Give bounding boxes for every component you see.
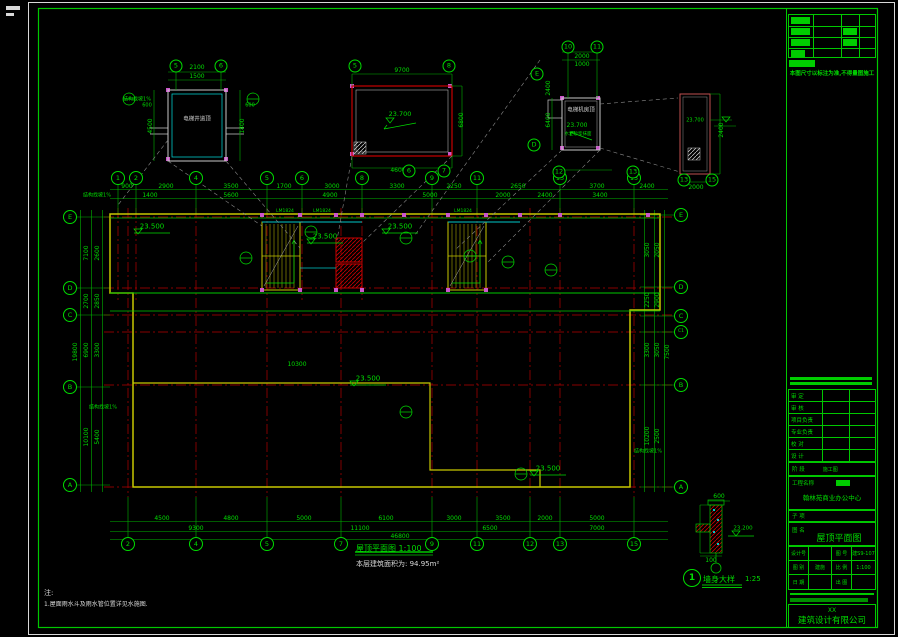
dim-label: 2250 — [645, 292, 651, 307]
revision-table — [788, 14, 876, 58]
slope-note: 结构找坡1% — [89, 406, 117, 411]
room-label: 电梯机房顶 — [567, 108, 595, 114]
axis-bubble-12: 12 — [523, 537, 537, 551]
axis-bubble-2: 2 — [121, 537, 135, 551]
axis-bubble-B: B — [674, 378, 688, 392]
personnel-cell — [823, 426, 850, 437]
axis-bubble-4: 4 — [189, 171, 203, 185]
axis-bubble-8: 8 — [443, 60, 456, 73]
subitem-row: 子 项 — [788, 510, 876, 522]
dim-label: 6900 — [84, 342, 90, 357]
dim-label: 4500 — [154, 516, 169, 522]
axis-bubble-E: E — [674, 208, 688, 222]
finish-note: 水泥砂浆抹面 — [565, 133, 592, 138]
dim-label: 3700 — [589, 184, 604, 190]
cad-sheet: 屋顶平面图 1:100 本层建筑面积为: 94.95m² 注: 1.屋面雨水斗及… — [0, 0, 898, 637]
personnel-cell — [823, 390, 850, 401]
dim-label: 46800 — [390, 534, 409, 540]
axis-bubble-2: 2 — [129, 171, 143, 185]
axis-bubble-12: 12 — [553, 166, 566, 179]
axis-bubble-8: 8 — [355, 171, 369, 185]
dim-label: 5000 — [296, 516, 311, 522]
dim-label: 4800 — [223, 516, 238, 522]
dim-label: 5000 — [589, 516, 604, 522]
personnel-cell — [823, 402, 850, 413]
numbers-grid-cell: 出 图 — [832, 575, 852, 589]
elevation-label: 23.500 — [140, 224, 165, 231]
axis-bubble-6: 6 — [403, 165, 416, 178]
annotation-overlay: 屋顶平面图 1:100 本层建筑面积为: 94.95m² 注: 1.屋面雨水斗及… — [0, 0, 898, 637]
wall-detail-scale: 1:25 — [745, 575, 761, 583]
axis-bubble-D: D — [528, 139, 541, 152]
dim-label: 2650 — [510, 184, 525, 190]
dim-label: 3300 — [389, 184, 404, 190]
axis-bubble-5: 5 — [170, 60, 183, 73]
personnel-row: 项目负责 — [789, 414, 875, 426]
dim-label: 2400 — [546, 80, 552, 95]
dim-label: 2400 — [719, 122, 725, 137]
dim-label: 3000 — [446, 516, 461, 522]
personnel-row: 校 对 — [789, 438, 875, 450]
company-name: 建筑设计有限公司 — [789, 614, 875, 626]
dim-label: 7100 — [84, 245, 90, 260]
axis-bubble-E: E — [531, 68, 544, 81]
numbers-grid-cell: 比 例 — [832, 561, 852, 574]
axis-bubble-11: 11 — [470, 171, 484, 185]
dim-label: 2900 — [158, 184, 173, 190]
stage-row: 阶 段 施工图 — [788, 462, 876, 476]
dim-label: 9300 — [188, 526, 203, 532]
axis-bubble-C: C — [63, 308, 77, 322]
axis-bubble-C: C — [674, 309, 688, 323]
axis-bubble-7: 7 — [334, 537, 348, 551]
personnel-cell — [850, 450, 875, 462]
axis-bubble-C1: C1 — [674, 325, 688, 339]
slope-note: 结构找坡1% — [634, 450, 662, 455]
slope-note: 结构找坡1% — [83, 194, 111, 199]
dim-label: 2850 — [95, 293, 101, 308]
tab-blob — [789, 60, 815, 67]
elevation-label: 23.700 — [686, 119, 704, 124]
axis-bubble-E: E — [63, 210, 77, 224]
elevation-label: 23.700 — [389, 111, 412, 118]
dim-label: 1700 — [276, 184, 291, 190]
elevation-label: 23.500 — [388, 224, 413, 231]
dim-label: 5600 — [223, 193, 238, 199]
axis-bubble-7: 7 — [438, 165, 451, 178]
project-label: 工程名称 — [789, 479, 814, 487]
axis-bubble-13: 13 — [627, 166, 640, 179]
numbers-grid-cell: 图 别 — [789, 561, 809, 574]
dim-label: 10300 — [287, 362, 306, 368]
area-note: 本层建筑面积为: 94.95m² — [356, 559, 439, 569]
dim-label: 1400 — [240, 118, 246, 133]
dim-label: 1000 — [574, 62, 589, 68]
axis-bubble-1: 1 — [111, 171, 125, 185]
dim-label: 7500 — [665, 344, 671, 359]
personnel-cell: 审 核 — [789, 402, 823, 413]
personnel-table: 审 定审 核项目负责专业负责校 对设 计 — [788, 389, 876, 462]
axis-bubble-A: A — [63, 478, 77, 492]
personnel-cell — [850, 426, 875, 437]
personnel-row: 专业负责 — [789, 426, 875, 438]
door-tag: LM1824 — [276, 210, 294, 215]
numbers-grid-cell: 建施 — [809, 561, 832, 574]
axis-bubble-5: 5 — [260, 537, 274, 551]
personnel-cell: 项目负责 — [789, 414, 823, 425]
dim-label: 7000 — [589, 526, 604, 532]
axis-bubble-6: 6 — [215, 60, 228, 73]
dim-label: 600 — [142, 104, 152, 109]
slope-note: 结构找坡1% — [123, 98, 151, 103]
numbers-grid-cell — [809, 547, 832, 560]
wall-detail-title: 墙身大样 — [703, 574, 735, 585]
axis-bubble-11: 11 — [470, 537, 484, 551]
dim-label: 5400 — [95, 429, 101, 444]
elevation-label: 23.200 — [733, 526, 752, 532]
dim-label: 19800 — [73, 342, 79, 361]
dim-label: 600 — [713, 494, 724, 500]
dim-label: 2900 — [655, 292, 661, 307]
dim-label: 1500 — [189, 74, 204, 80]
dim-label: 900 — [121, 184, 132, 190]
dim-label: 11100 — [350, 526, 369, 532]
elevation-label: 23.500 — [313, 234, 338, 241]
drawing-name-row: 图 名 屋顶平面图 — [788, 522, 876, 546]
elevation-label: 23.500 — [356, 376, 381, 383]
dim-label: 4900 — [322, 193, 337, 199]
dim-label: 5000 — [422, 193, 437, 199]
axis-bubble-B: B — [63, 380, 77, 394]
dim-label: 2600 — [95, 245, 101, 260]
numbers-grid-cell — [852, 575, 875, 589]
personnel-cell — [823, 414, 850, 425]
elevation-label: 23.700 — [567, 123, 588, 129]
dim-label: 3500 — [495, 516, 510, 522]
personnel-cell: 审 定 — [789, 390, 823, 401]
dim-label: 2400 — [639, 184, 654, 190]
axis-bubble-11: 11 — [591, 41, 604, 54]
titleblock-note: 本图尺寸以标注为准,不得量图施工 — [788, 69, 876, 77]
dim-label: 3000 — [324, 184, 339, 190]
dim-label: 2000 — [688, 185, 703, 191]
personnel-row: 审 定 — [789, 390, 875, 402]
plan-title: 屋顶平面图 1:100 — [356, 543, 422, 554]
room-label: 电梯井道顶 — [183, 117, 211, 123]
dim-label: 100 — [705, 558, 716, 564]
numbers-grid-cell — [809, 575, 832, 589]
dim-label: 2000 — [574, 54, 589, 60]
stage-label: 阶 段 — [789, 465, 805, 473]
door-tag: LM1824 — [454, 210, 472, 215]
project-block: 工程名称 翰林苑商业办公中心 — [788, 476, 876, 510]
numbers-grid: 设计号图 号建S9-107图 别建施比 例1:100日 期出 图 — [788, 546, 876, 590]
dim-label: 2400 — [537, 193, 552, 199]
numbers-grid-row: 设计号图 号建S9-107 — [789, 547, 875, 561]
dim-label: 2000 — [495, 193, 510, 199]
stage-value: 施工图 — [823, 466, 838, 473]
dim-label: 3500 — [223, 184, 238, 190]
elevation-label: 23.500 — [536, 466, 561, 473]
personnel-cell — [850, 414, 875, 425]
dim-label: 2100 — [189, 65, 204, 71]
personnel-cell — [850, 438, 875, 449]
dim-label: 4500 — [148, 118, 154, 133]
dim-label: 6500 — [482, 526, 497, 532]
door-tag: LM1824 — [313, 210, 331, 215]
dim-label: 3050 — [645, 242, 651, 257]
dim-label: 6100 — [378, 516, 393, 522]
axis-bubble-13: 13 — [553, 537, 567, 551]
dim-label: 10200 — [645, 426, 651, 445]
note-line: 1.屋面雨水斗及雨水管位置详见水施图. — [44, 599, 148, 608]
personnel-cell — [823, 438, 850, 449]
dim-label: 6800 — [459, 112, 465, 127]
dim-label: 2700 — [84, 293, 90, 308]
axis-bubble-5: 5 — [349, 60, 362, 73]
axis-bubble-10: 10 — [562, 41, 575, 54]
axis-bubble-15: 15 — [706, 174, 719, 187]
personnel-row: 设 计 — [789, 450, 875, 462]
dim-label: 6400 — [546, 112, 552, 127]
numbers-grid-cell: 图 号 — [832, 547, 852, 560]
dim-label: 2250 — [446, 184, 461, 190]
personnel-row: 审 核 — [789, 402, 875, 414]
dim-label: 2000 — [537, 516, 552, 522]
axis-bubble-13: 13 — [678, 174, 691, 187]
axis-bubble-D: D — [674, 280, 688, 294]
axis-bubble-D: D — [63, 281, 77, 295]
axis-bubble-5: 5 — [260, 171, 274, 185]
numbers-grid-cell: 日 期 — [789, 575, 809, 589]
title-block: 本图尺寸以标注为准,不得量图施工 审 定审 核项目负责专业负责校 对设 计 阶 … — [787, 8, 878, 628]
numbers-grid-row: 图 别建施比 例1:100 — [789, 561, 875, 575]
drawing-name-label: 图 名 — [792, 526, 805, 534]
personnel-cell: 校 对 — [789, 438, 823, 449]
personnel-cell — [850, 390, 875, 401]
dim-label: 10100 — [84, 427, 90, 446]
note-head: 注: — [44, 588, 53, 598]
drawing-name-value: 屋顶平面图 — [803, 531, 875, 544]
axis-bubble-4: 4 — [189, 537, 203, 551]
dim-label: 3300 — [95, 342, 101, 357]
dim-label: 1400 — [142, 193, 157, 199]
axis-bubble-6: 6 — [295, 171, 309, 185]
personnel-cell: 专业负责 — [789, 426, 823, 437]
personnel-cell — [850, 402, 875, 413]
axis-bubble-9: 9 — [425, 537, 439, 551]
wall-detail-number: 1 — [683, 569, 701, 587]
dim-label: 2500 — [655, 428, 661, 443]
numbers-grid-row: 日 期出 图 — [789, 575, 875, 589]
numbers-grid-cell: 1:100 — [852, 561, 875, 574]
axis-bubble-15: 15 — [627, 537, 641, 551]
numbers-grid-cell: 设计号 — [789, 547, 809, 560]
dim-label: 3400 — [592, 193, 607, 199]
dim-label: 600 — [245, 104, 255, 109]
dim-label: 2050 — [655, 242, 661, 257]
company-prefix: XX — [789, 607, 875, 614]
dim-label: 3300 — [645, 342, 651, 357]
personnel-cell: 设 计 — [789, 450, 823, 462]
personnel-cell — [823, 450, 850, 462]
dim-label: 3050 — [655, 342, 661, 357]
subitem-label: 子 项 — [789, 512, 805, 520]
project-value: 翰林苑商业办公中心 — [789, 492, 875, 502]
dim-label: 9700 — [394, 68, 409, 74]
numbers-grid-cell: 建S9-107 — [852, 547, 875, 560]
axis-bubble-A: A — [674, 480, 688, 494]
company-block: XX 建筑设计有限公司 — [788, 604, 876, 628]
